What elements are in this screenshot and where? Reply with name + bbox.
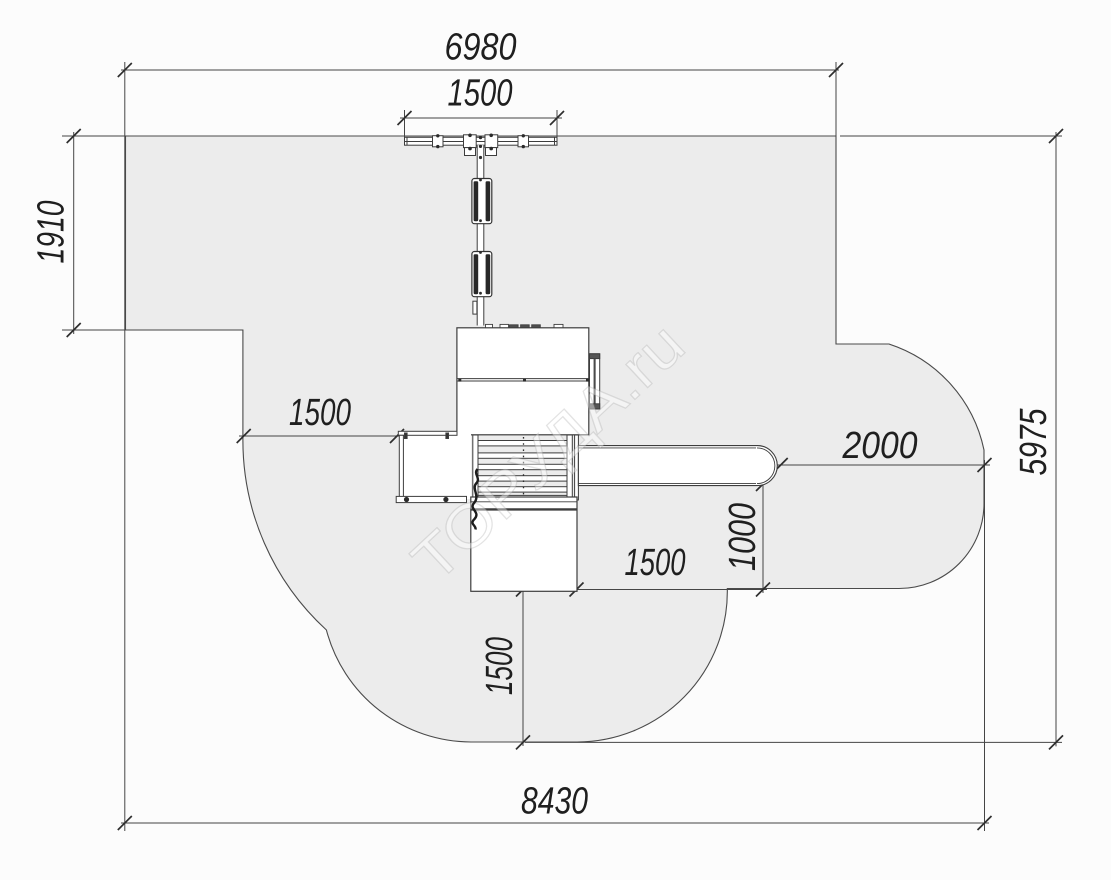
svg-text:1500: 1500 (289, 392, 351, 434)
svg-text:1500: 1500 (479, 637, 521, 695)
svg-text:6980: 6980 (445, 27, 517, 69)
svg-text:1500: 1500 (625, 542, 686, 584)
svg-text:1000: 1000 (722, 503, 764, 571)
svg-text:1500: 1500 (448, 73, 513, 115)
svg-text:1910: 1910 (31, 201, 73, 264)
svg-text:2000: 2000 (842, 425, 918, 467)
svg-text:5975: 5975 (1013, 408, 1055, 476)
svg-text:8430: 8430 (521, 781, 588, 823)
